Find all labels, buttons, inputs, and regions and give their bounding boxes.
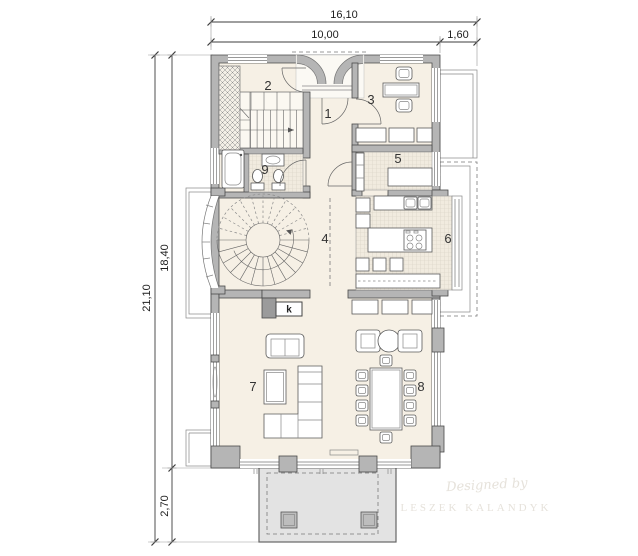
pilaster-right-upper bbox=[432, 328, 444, 352]
terrace-left-lower bbox=[186, 430, 211, 466]
window-top-room2 bbox=[228, 55, 267, 63]
window-right-room5 bbox=[432, 152, 440, 186]
floor-plan-drawing: 16,10 10,00 1,60 21,10 18,40 2,70 bbox=[0, 0, 638, 556]
kitchen-counter-top bbox=[374, 196, 432, 210]
dim-label-total-width: 16,10 bbox=[330, 9, 358, 21]
bathtub bbox=[222, 150, 244, 188]
room-label-3: 3 bbox=[367, 92, 374, 107]
chimney-block bbox=[262, 298, 276, 318]
window-right-dining-lower bbox=[432, 352, 440, 426]
armchair bbox=[356, 330, 380, 352]
room-label-2: 2 bbox=[264, 78, 271, 93]
pantry-counter bbox=[388, 168, 432, 186]
coffee-table bbox=[264, 370, 286, 404]
pilaster-bottom-left bbox=[279, 456, 297, 472]
dim-label-total-height: 21,10 bbox=[141, 284, 153, 312]
watermark-line1: Designed by bbox=[445, 476, 529, 495]
room-label-5: 5 bbox=[394, 151, 401, 166]
pantry-shelves bbox=[356, 153, 364, 191]
watermark-line2: LESZEK KALANDYK bbox=[400, 502, 551, 514]
kitchen-counter-bottom bbox=[356, 274, 440, 288]
corner-bottom-left bbox=[211, 446, 240, 468]
dining-table bbox=[370, 368, 402, 430]
room-label-6: 6 bbox=[444, 231, 451, 246]
room-label-7: 7 bbox=[249, 379, 256, 394]
designer-watermark: Designed by LESZEK KALANDYK bbox=[400, 476, 551, 514]
window-left-living-band bbox=[211, 313, 219, 453]
armchair bbox=[398, 330, 422, 352]
desk bbox=[383, 83, 419, 97]
room-label-9: 9 bbox=[261, 162, 268, 177]
dim-label-house-height: 18,40 bbox=[159, 244, 171, 272]
desk-chair bbox=[396, 99, 412, 112]
desk-chair bbox=[396, 67, 412, 80]
window-right-room3 bbox=[432, 68, 440, 122]
wardrobe-hatch bbox=[219, 66, 240, 150]
dim-label-terrace-width: 1,60 bbox=[447, 29, 468, 41]
room-label-1: 1 bbox=[324, 106, 331, 121]
dim-label-terrace-height: 2,70 bbox=[159, 495, 171, 516]
window-bottom-band bbox=[240, 459, 411, 468]
window-right-dining-upper bbox=[432, 300, 440, 328]
room-label-8: 8 bbox=[417, 379, 424, 394]
sideboard-dining bbox=[352, 300, 432, 314]
floor-plan-page: 16,10 10,00 1,60 21,10 18,40 2,70 bbox=[0, 0, 638, 556]
kitchen-island bbox=[368, 228, 432, 252]
kitchen-bay-glazing bbox=[452, 196, 462, 290]
terrace-column bbox=[281, 512, 297, 528]
terrace-top-right bbox=[440, 70, 477, 158]
sideboard-room3 bbox=[356, 128, 432, 142]
loveseat bbox=[266, 334, 304, 358]
room-label-4: 4 bbox=[321, 231, 328, 246]
terrace-bottom bbox=[259, 466, 396, 542]
pilaster-bottom-right bbox=[359, 456, 377, 472]
window-left-bath bbox=[211, 148, 219, 184]
kitchen-appliance-row bbox=[356, 258, 403, 271]
fireplace-label: k bbox=[286, 305, 292, 316]
dim-label-main-width: 10,00 bbox=[311, 29, 339, 41]
corner-bottom-right bbox=[411, 446, 440, 468]
side-table-round bbox=[378, 330, 400, 352]
window-top-room3 bbox=[380, 55, 423, 63]
terrace-column bbox=[361, 512, 377, 528]
